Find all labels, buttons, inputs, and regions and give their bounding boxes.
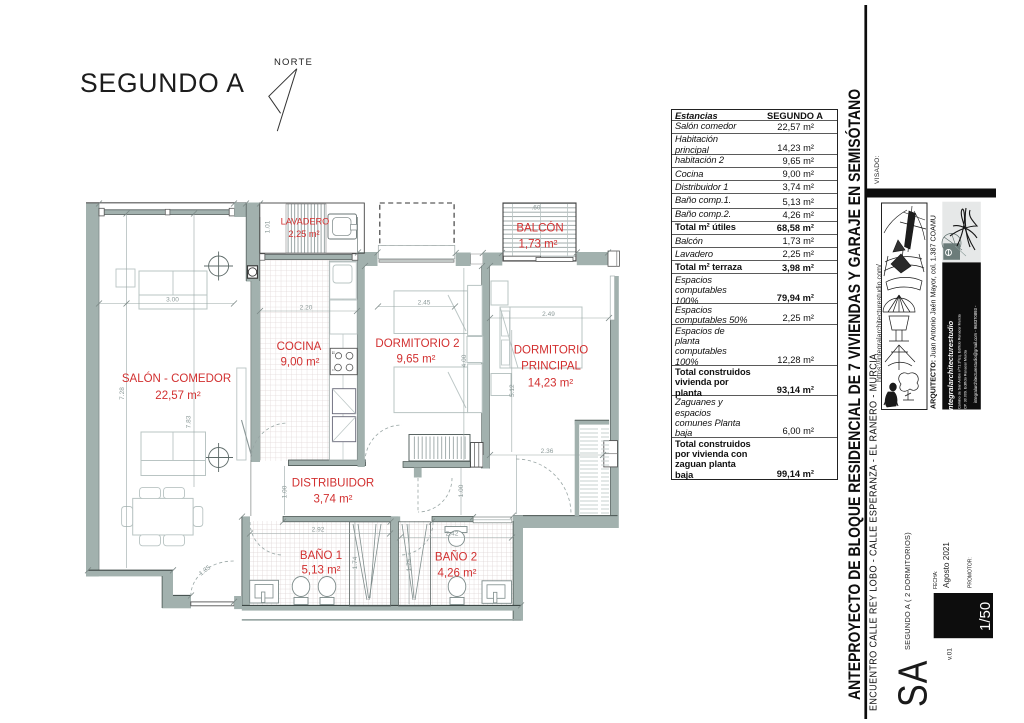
svg-text:v.01: v.01 [947, 648, 954, 660]
svg-text:COCINA: COCINA [277, 341, 322, 353]
svg-text:4,26 m²: 4,26 m² [438, 568, 477, 580]
svg-text:1.00: 1.00 [458, 484, 465, 497]
svg-text:SEGUNDO A ( 2 DORMITORIOS): SEGUNDO A ( 2 DORMITORIOS) [903, 532, 912, 650]
svg-text:VISADO:: VISADO: [874, 155, 881, 184]
svg-text:2.36: 2.36 [541, 448, 554, 455]
svg-text:FECHA:: FECHA: [933, 571, 939, 589]
svg-text:ENCUENTRO CALLE REY LOBO - CAL: ENCUENTRO CALLE REY LOBO - CALLE ESPERAN… [868, 353, 880, 711]
svg-text:7.28: 7.28 [119, 387, 126, 400]
svg-text:Agosto 2021: Agosto 2021 [942, 542, 951, 588]
svg-text:DORMITORIO 2: DORMITORIO 2 [375, 338, 459, 350]
svg-text:4.00: 4.00 [461, 354, 468, 367]
svg-text:DISTRIBUIDOR: DISTRIBUIDOR [292, 478, 374, 490]
svg-text:LAVADERO: LAVADERO [281, 217, 330, 227]
svg-text:SALÓN - COMEDOR: SALÓN - COMEDOR [122, 372, 231, 385]
svg-text:3.00: 3.00 [166, 297, 179, 304]
svg-text:5,13 m²: 5,13 m² [302, 565, 341, 577]
svg-text:1.35: 1.35 [198, 564, 213, 578]
svg-text:integralarchitecturestudio@gma: integralarchitecturestudio@gmail.com - 9… [973, 305, 978, 403]
svg-text:1,73 m²: 1,73 m² [519, 239, 558, 251]
svg-text:DORMITORIO: DORMITORIO [514, 345, 589, 357]
svg-text:22,57 m²: 22,57 m² [155, 390, 201, 402]
svg-text:PROMOTOR:: PROMOTOR: [968, 557, 974, 588]
svg-text:2.45: 2.45 [418, 300, 431, 307]
svg-text:1.01: 1.01 [265, 220, 272, 233]
svg-text:SEGUNDO A: SEGUNDO A [80, 68, 245, 98]
svg-text:Camino de San Antón nº71 3ºIzq: Camino de San Antón nº71 3ºIzq. Edificio… [958, 313, 962, 409]
svg-text:2,25 m²: 2,25 m² [288, 229, 319, 239]
svg-text:9,65 m²: 9,65 m² [397, 354, 436, 366]
svg-text:3,74 m²: 3,74 m² [314, 494, 353, 506]
svg-text:1.00: 1.00 [282, 485, 289, 498]
svg-text:BALCÓN: BALCÓN [516, 222, 563, 235]
svg-text:14,23 m²: 14,23 m² [528, 378, 574, 390]
svg-text:2.49: 2.49 [542, 311, 555, 318]
svg-text:7.83: 7.83 [186, 415, 193, 428]
svg-text:1.75: 1.75 [406, 558, 413, 571]
svg-text:2.20: 2.20 [300, 305, 313, 312]
svg-text:9,00 m²: 9,00 m² [281, 357, 320, 369]
svg-text:PRINCIPAL: PRINCIPAL [521, 361, 581, 373]
svg-text:2.42: 2.42 [446, 531, 459, 538]
svg-text:.60: .60 [531, 205, 540, 212]
svg-text:2.92: 2.92 [312, 527, 325, 534]
svg-text:5.12: 5.12 [509, 384, 516, 397]
svg-text:ARQUITECTO: Juan Antonio Jaén: ARQUITECTO: Juan Antonio Jaén Mayor, col… [930, 215, 938, 409]
svg-text:CP. 30.009. Edificio Renacer M: CP. 30.009. Edificio Renacer Murcia [964, 349, 968, 409]
svg-text:1/50: 1/50 [977, 602, 994, 631]
svg-text:SA: SA [890, 660, 936, 707]
svg-text:NORTE: NORTE [274, 57, 313, 68]
svg-text:1.74: 1.74 [352, 556, 359, 569]
svg-text:BAÑO 1: BAÑO 1 [300, 549, 342, 562]
svg-text:ANTEPROYECTO DE BLOQUE RESIDEN: ANTEPROYECTO DE BLOQUE RESIDENCIAL DE 7 … [845, 89, 864, 700]
svg-text:integralarchitecturestudio: integralarchitecturestudio [946, 320, 955, 412]
svg-text:BAÑO 2: BAÑO 2 [435, 551, 477, 564]
